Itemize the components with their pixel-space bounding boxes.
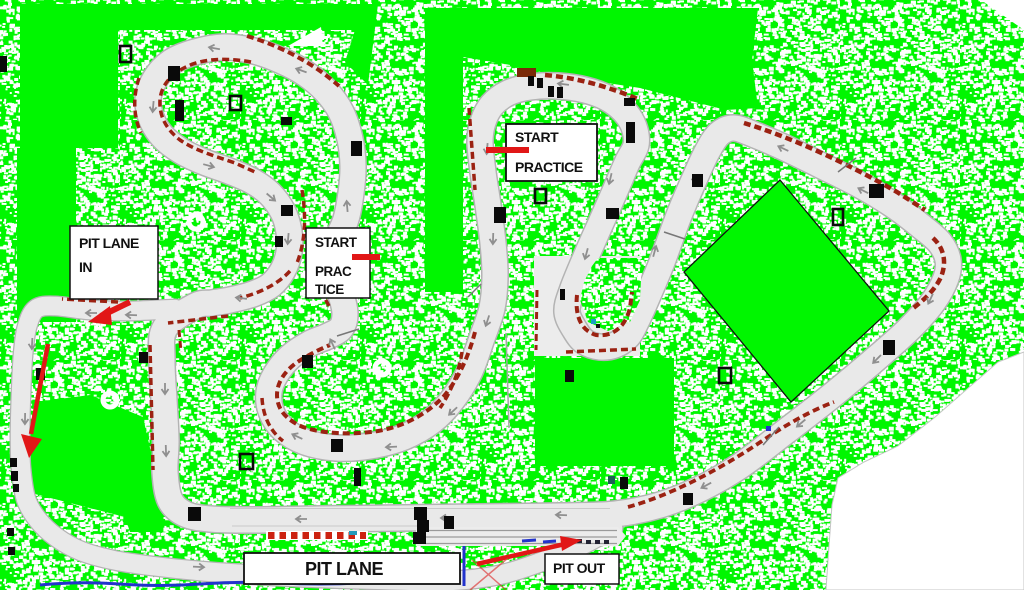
svg-text:IN: IN xyxy=(79,259,92,275)
svg-text:PRACTICE: PRACTICE xyxy=(515,159,583,175)
svg-text:PIT LANE: PIT LANE xyxy=(305,559,383,579)
svg-text:PIT LANE: PIT LANE xyxy=(79,235,139,251)
svg-text:PIT OUT: PIT OUT xyxy=(553,560,606,576)
svg-text:TICE: TICE xyxy=(315,282,344,297)
svg-text:START: START xyxy=(315,235,358,250)
svg-text:PRAC: PRAC xyxy=(315,264,352,279)
svg-text:START: START xyxy=(515,129,559,145)
